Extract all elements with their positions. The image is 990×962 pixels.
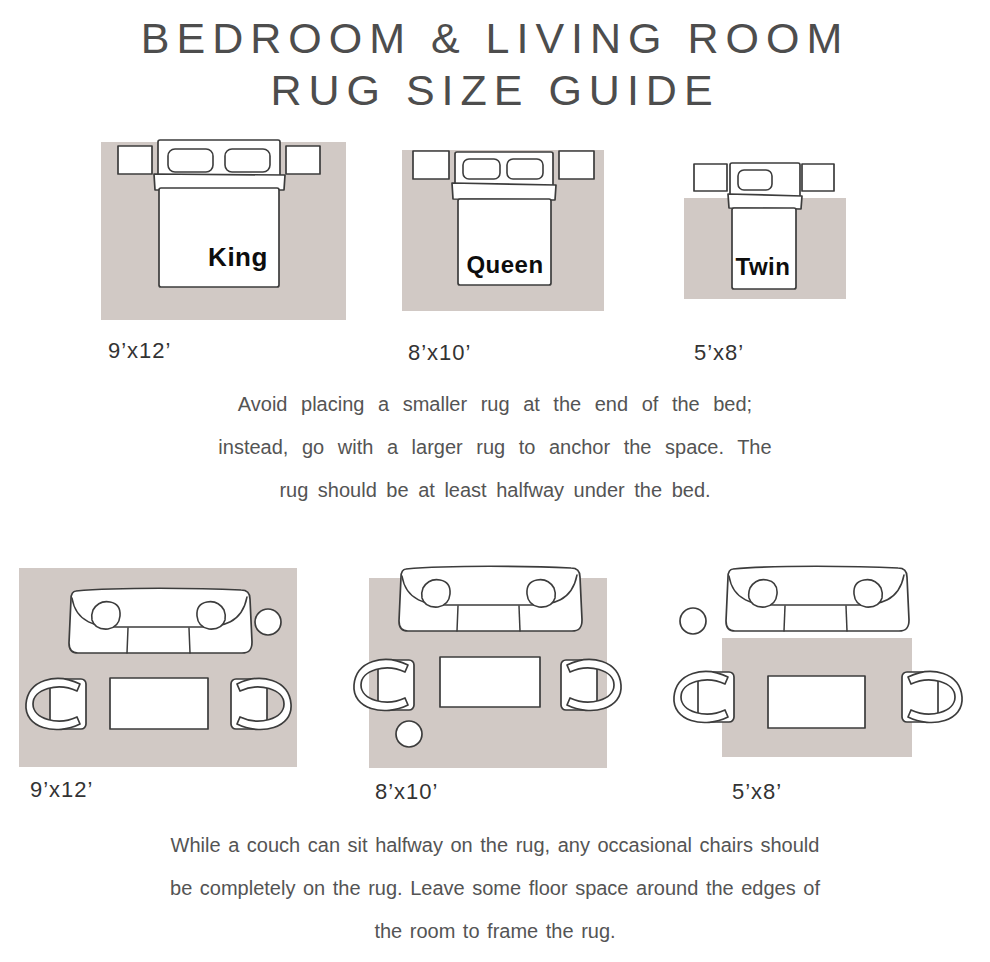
rug-size-guide-infographic: BEDROOM & LIVING ROOM RUG SIZE GUIDE Kin…	[0, 0, 990, 962]
bedroom-note-line-3: rug should be at least halfway under the…	[0, 469, 990, 512]
queen-rug-size-label: 8’x10’	[408, 340, 471, 366]
bedroom-figure-king: King	[88, 133, 358, 333]
bedroom-note-line-2: instead, go with a larger rug to anchor …	[0, 426, 990, 469]
bedroom-note: Avoid placing a smaller rug at the end o…	[0, 383, 990, 512]
living-note-line-3: the room to frame the rug.	[0, 910, 990, 953]
twin-nightstand-left	[694, 164, 727, 191]
living-figure-5x8	[660, 555, 985, 775]
guide-title-line-1: BEDROOM & LIVING ROOM	[0, 14, 990, 63]
side-table	[255, 609, 281, 635]
armchair-right	[902, 671, 962, 722]
living-figure-8x10	[340, 555, 660, 775]
living-note: While a couch can sit halfway on the rug…	[0, 824, 990, 953]
king-pillow-right	[225, 149, 270, 172]
twin-pillow	[738, 170, 772, 190]
living-rug-size-label-9x12: 9’x12’	[30, 777, 93, 803]
side-table	[396, 721, 422, 747]
living-rug-size-label-5x8: 5’x8’	[732, 779, 782, 805]
armchair-right	[561, 659, 621, 710]
twin-blanket-fold	[728, 194, 802, 209]
queen-pillow-right	[507, 159, 543, 179]
twin-bed: Twin	[728, 163, 802, 289]
coffee-table	[110, 678, 208, 729]
bedroom-note-line-1: Avoid placing a smaller rug at the end o…	[0, 383, 990, 426]
coffee-table	[768, 676, 865, 728]
living-note-line-2: be completely on the rug. Leave some flo…	[0, 867, 990, 910]
king-nightstand-left	[118, 146, 152, 174]
king-bed: King	[154, 140, 285, 287]
armchair-left	[354, 659, 414, 710]
queen-pillow-left	[463, 159, 500, 179]
twin-rug-size-label: 5’x8’	[694, 340, 744, 366]
queen-bed: Queen	[452, 152, 556, 285]
side-table	[680, 608, 706, 634]
living-rug-size-label-8x10: 8’x10’	[375, 779, 438, 805]
king-rug-size-label: 9’x12’	[108, 338, 171, 364]
living-note-line-1: While a couch can sit halfway on the rug…	[0, 824, 990, 867]
sofa	[69, 588, 252, 653]
queen-nightstand-left	[413, 151, 449, 179]
sofa	[399, 566, 582, 631]
king-nightstand-right	[286, 146, 320, 174]
bedroom-figure-queen: Queen	[395, 133, 615, 333]
queen-bed-label: Queen	[466, 251, 543, 278]
queen-nightstand-right	[559, 151, 594, 179]
coffee-table	[440, 657, 540, 707]
king-bed-label: King	[208, 242, 268, 272]
king-pillow-left	[168, 149, 213, 172]
armchair-left	[674, 671, 734, 722]
guide-title-line-2: RUG SIZE GUIDE	[0, 66, 990, 115]
twin-bed-label: Twin	[736, 253, 791, 280]
twin-nightstand-right	[802, 164, 834, 191]
living-figure-9x12	[10, 555, 310, 775]
bedroom-figure-twin: Twin	[665, 133, 885, 333]
sofa	[726, 566, 909, 631]
queen-blanket-fold	[452, 183, 556, 200]
